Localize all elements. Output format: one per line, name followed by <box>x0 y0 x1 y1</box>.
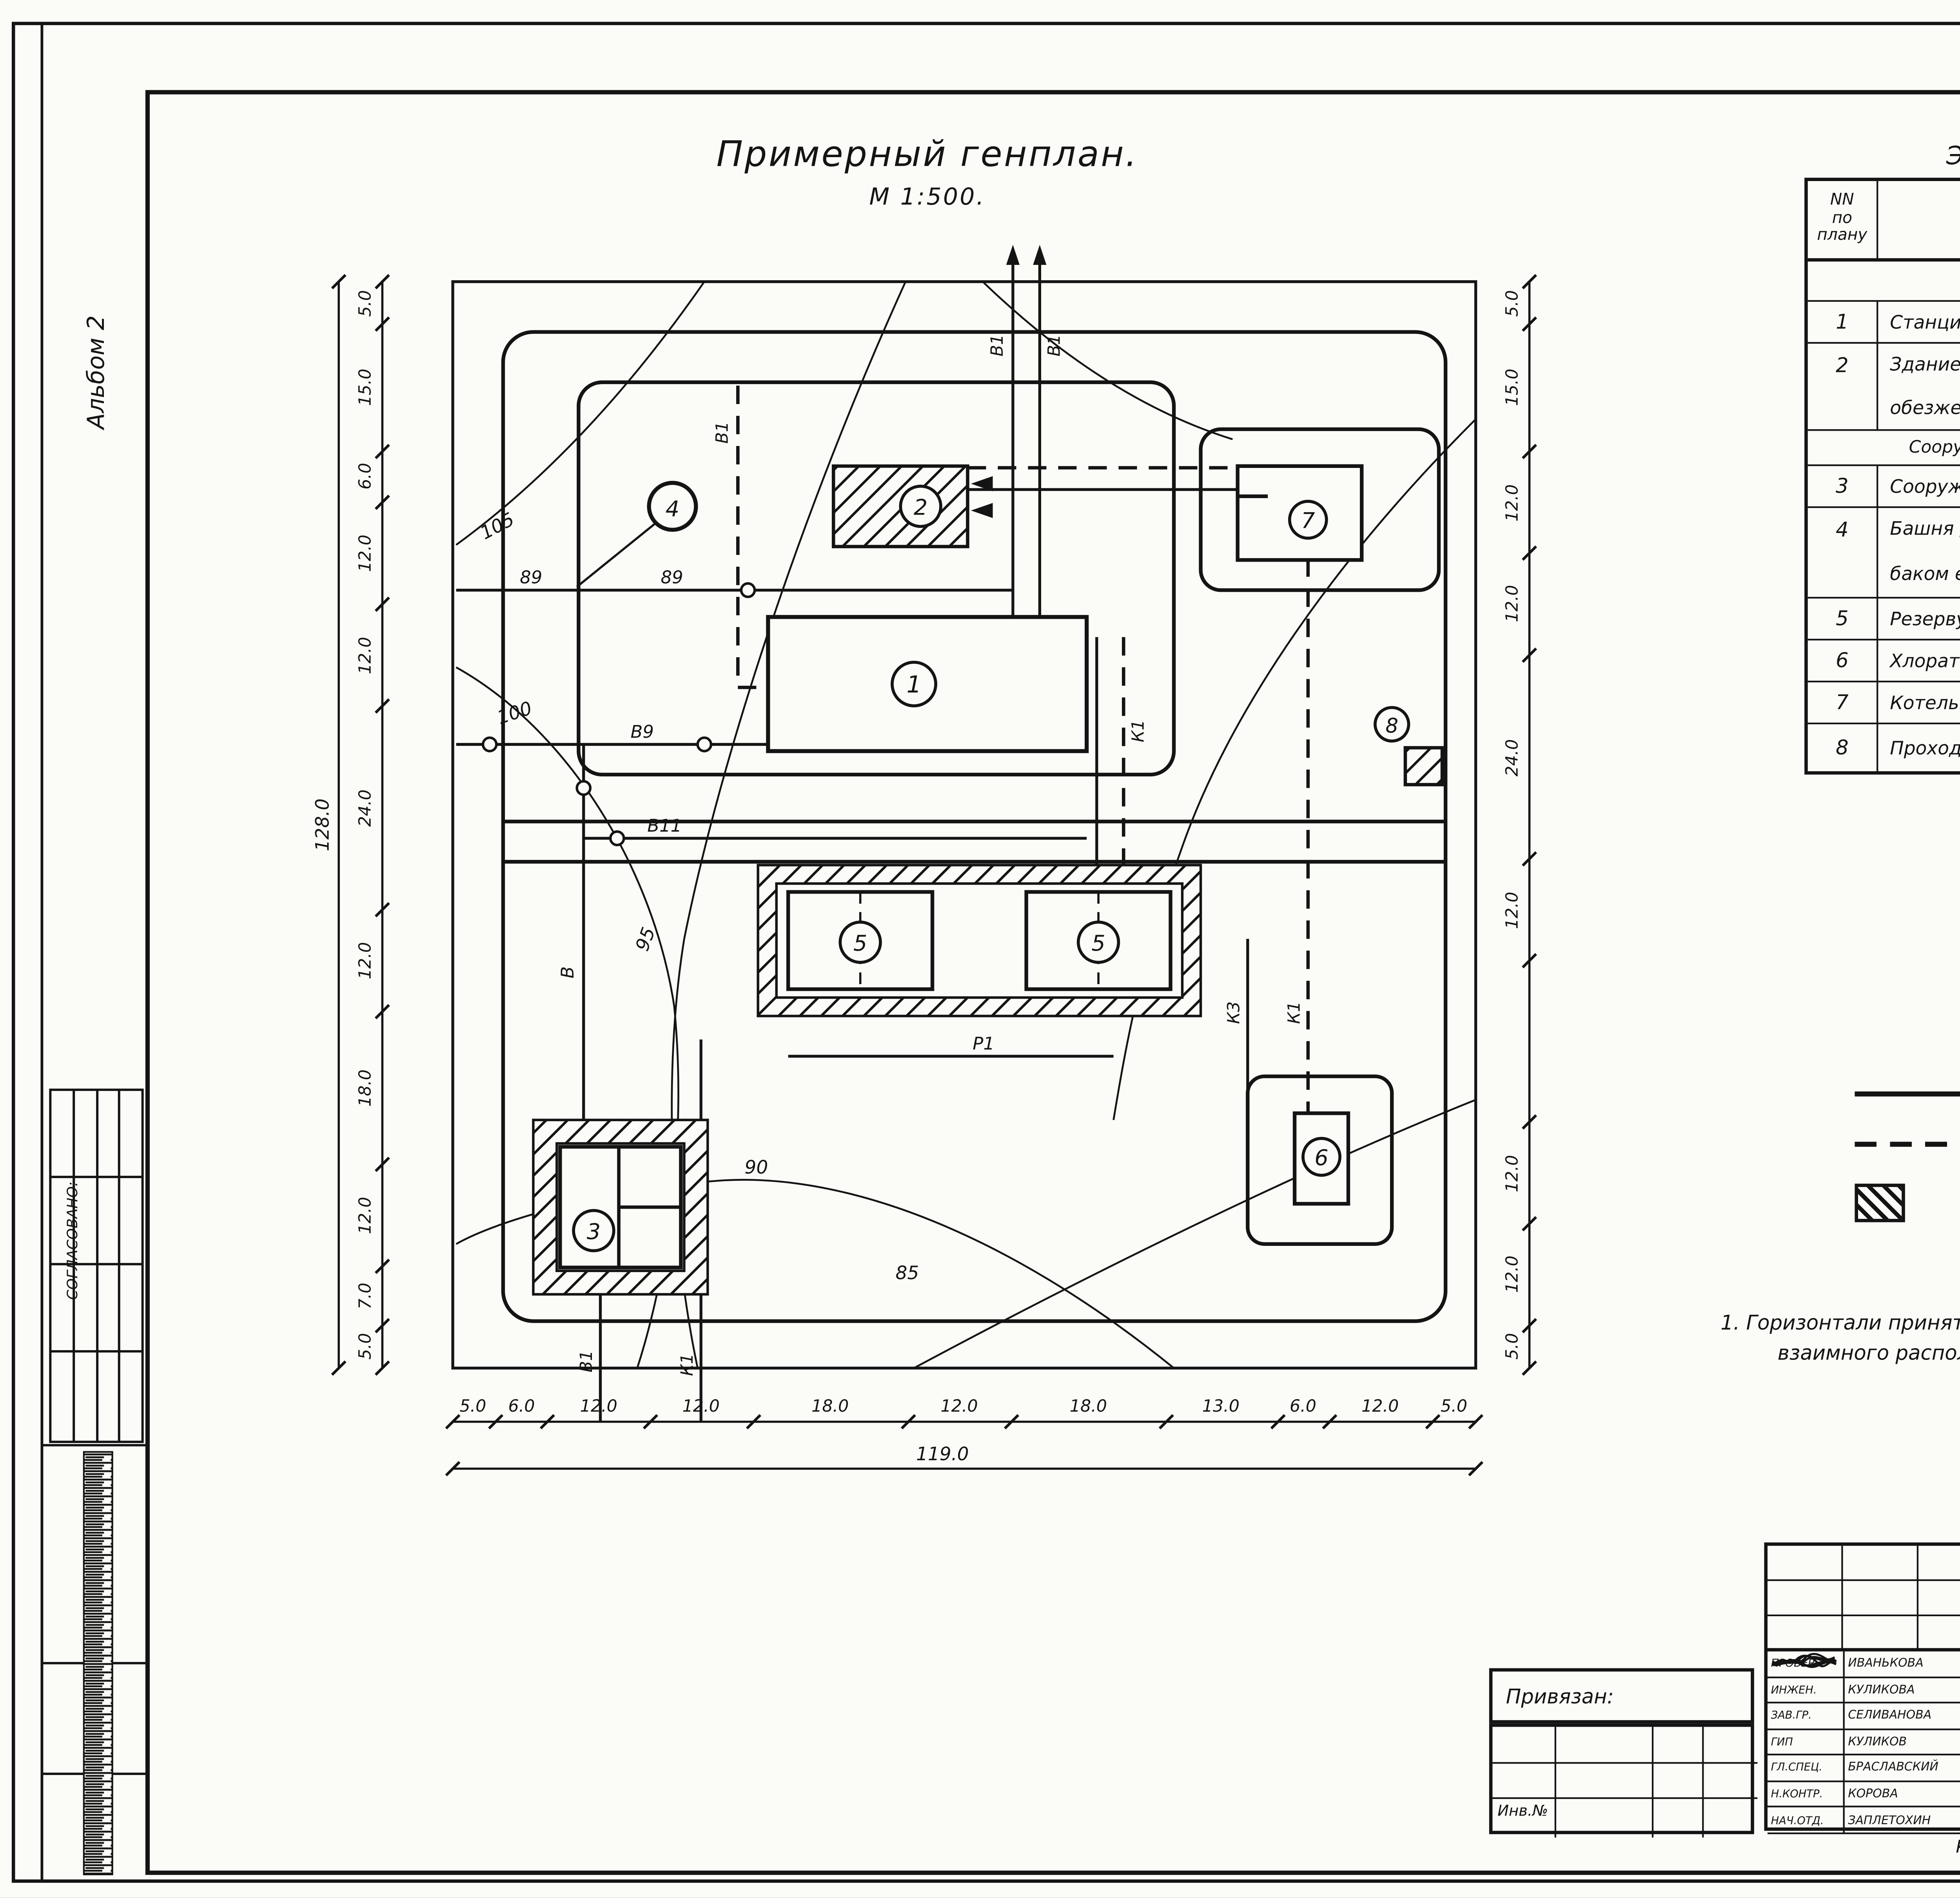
svg-text:24.0: 24.0 <box>355 789 375 827</box>
legend-item-3 <box>1855 1184 1960 1222</box>
contour-85: 85 <box>895 1262 919 1284</box>
svg-text:5: 5 <box>853 931 867 956</box>
svg-text:15.0: 15.0 <box>355 369 375 406</box>
table-cell: 8 <box>1808 724 1878 771</box>
svg-text:7.0: 7.0 <box>355 1283 375 1309</box>
svg-text:12.0: 12.0 <box>580 1396 617 1416</box>
svg-text:6: 6 <box>1314 1145 1328 1171</box>
svg-text:6.0: 6.0 <box>355 463 375 489</box>
hatch-sample <box>1855 1184 1905 1222</box>
section-row: Проектируемые сооружения <box>1808 261 1960 302</box>
svg-text:5.0: 5.0 <box>1503 1333 1522 1360</box>
label-k1-lower: К1 <box>1284 1001 1304 1024</box>
agreed-label: СОГЛАСОВАНО: <box>64 1182 81 1300</box>
label-v1-loop-v: В1 <box>713 421 732 444</box>
table-cell <box>1808 550 1878 598</box>
label-v9: В9 <box>631 721 654 742</box>
table-cell: 5 <box>1808 598 1878 640</box>
svg-text:12.0: 12.0 <box>940 1396 978 1416</box>
label-89-b: 89 <box>661 567 683 588</box>
table-cell: Резервуары чистой воды W=2×700м³ <box>1878 598 1960 640</box>
table-cell: Сооружения по обороту промывной воды <box>1878 466 1960 508</box>
svg-text:5.0: 5.0 <box>355 290 375 317</box>
svg-text:12.0: 12.0 <box>1503 892 1522 929</box>
table-cell: баком емкостью 200м³ <box>1878 550 1960 598</box>
dim-total-left: 128.0 <box>312 798 333 851</box>
inventory-grid: Инв.№ <box>1489 1724 1754 1834</box>
table-cell: обезжелезивания. <box>1878 386 1960 431</box>
label-89-a: 89 <box>520 567 542 588</box>
table-cell: 6 <box>1808 640 1878 682</box>
stamp-main-box: ПРОВЕР.ИВАНЬКОВА ИНЖЕН.КУЛИКОВА ЗАВ.ГР.С… <box>1764 1543 1960 1831</box>
attached-box: Привязан: <box>1489 1668 1754 1724</box>
dim-labels-left: 5.0 15.0 6.0 12.0 12.0 24.0 12.0 18.0 12… <box>312 290 375 1360</box>
svg-text:5.0: 5.0 <box>1503 290 1522 317</box>
svg-text:12.0: 12.0 <box>1503 484 1522 522</box>
svg-text:18.0: 18.0 <box>811 1396 849 1416</box>
svg-text:12.0: 12.0 <box>355 942 375 979</box>
table-cell: 7 <box>1808 682 1878 724</box>
note-line: взаимного расположения сооружений на рел… <box>1720 1338 1960 1368</box>
table-cell: Котельная <box>1878 682 1960 724</box>
copied-by: Копировал: Логинова <box>1871 1838 1960 1858</box>
svg-text:18.0: 18.0 <box>355 1070 375 1107</box>
explication-title: Экспликация зданий и сооружений. <box>1804 141 1960 171</box>
label-b3-k1: К1 <box>677 1354 697 1376</box>
svg-text:5.0: 5.0 <box>459 1396 486 1416</box>
table-cell <box>1808 386 1878 431</box>
label-k1-upper: К1 <box>1129 720 1148 742</box>
table-cell: Станция обезжелезивания <box>1878 302 1960 344</box>
explication: Экспликация зданий и сооружений. NN по п… <box>1804 141 1960 774</box>
svg-text:5.0: 5.0 <box>1441 1396 1467 1416</box>
svg-text:7: 7 <box>1301 508 1315 534</box>
label-r1: Р1 <box>973 1033 995 1054</box>
building-8 <box>1405 748 1442 785</box>
table-cell: Здание бактерицидной установки для станц… <box>1878 344 1960 386</box>
col-header-name: Наименование <box>1878 181 1960 261</box>
title-block: ПРОВЕР.ИВАНЬКОВА ИНЖЕН.КУЛИКОВА ЗАВ.ГР.С… <box>1486 1532 1960 1898</box>
drawing-sheet: 11 Альбом 2 СОГЛАСОВАНО: 105 100 95 90 8… <box>0 0 1960 1898</box>
svg-text:12.0: 12.0 <box>355 535 375 572</box>
label-v: В <box>557 966 578 979</box>
svg-text:18.0: 18.0 <box>1070 1396 1107 1416</box>
svg-text:12.0: 12.0 <box>1503 585 1522 622</box>
svg-text:6.0: 6.0 <box>1290 1396 1316 1416</box>
svg-text:15.0: 15.0 <box>1503 369 1522 406</box>
svg-text:5: 5 <box>1091 931 1105 956</box>
table-cell: 3 <box>1808 466 1878 508</box>
svg-text:2: 2 <box>914 495 927 520</box>
plan-title: Примерный генплан. <box>684 134 1171 174</box>
building-3 <box>533 1120 708 1294</box>
inventory-label: Инв.№ <box>1497 1804 1548 1821</box>
table-cell: Башня для хранения промывной воды <box>1878 508 1960 550</box>
svg-text:13.0: 13.0 <box>1202 1396 1240 1416</box>
legend-title: Условные обозначения <box>1855 1026 1960 1056</box>
svg-text:6.0: 6.0 <box>508 1396 535 1416</box>
label-b3-v1: В1 <box>577 1350 596 1372</box>
col-header-num: NN по плану <box>1808 181 1878 261</box>
label-k3-lower: К3 <box>1224 1001 1243 1024</box>
svg-text:12.0: 12.0 <box>1503 1256 1522 1293</box>
svg-text:3: 3 <box>587 1219 601 1244</box>
explication-table: NN по плану Наименование Номер типового … <box>1804 178 1960 774</box>
table-cell: 2 <box>1808 344 1878 386</box>
signature-rows: ПРОВЕР.ИВАНЬКОВА ИНЖЕН.КУЛИКОВА ЗАВ.ГР.С… <box>1768 1651 1960 1834</box>
svg-text:1: 1 <box>906 671 921 698</box>
svg-text:12.0: 12.0 <box>355 637 375 674</box>
svg-text:12.0: 12.0 <box>1361 1396 1399 1416</box>
note-line: 1. Горизонтали приняты условно для обозн… <box>1720 1308 1960 1338</box>
svg-text:12.0: 12.0 <box>682 1396 720 1416</box>
section-row: Сооружения, рекомендуемые для применения… <box>1808 431 1960 466</box>
dim-total-bottom: 119.0 <box>916 1443 969 1465</box>
table-cell: 4 <box>1808 508 1878 550</box>
svg-text:12.0: 12.0 <box>355 1197 375 1234</box>
revision-grid <box>1768 1546 1960 1650</box>
legend: Условные обозначения Обеззараживание хло… <box>1855 1026 1960 1251</box>
dashed-line-sample <box>1855 1142 1960 1147</box>
dim-labels-right: 5.0 15.0 12.0 12.0 24.0 12.0 12.0 12.0 5… <box>1503 290 1522 1360</box>
svg-text:5.0: 5.0 <box>355 1333 375 1360</box>
legend-item-1: Обеззараживание хлорной водой (Вариант I… <box>1855 1083 1960 1105</box>
table-cell: Хлораторная на 2кг хлора в час. <box>1878 640 1960 682</box>
svg-text:24.0: 24.0 <box>1503 739 1522 776</box>
contour-90: 90 <box>744 1157 768 1178</box>
label-v11: В11 <box>647 815 682 836</box>
svg-text:12.0: 12.0 <box>1503 1155 1522 1192</box>
dim-labels-bottom: 5.0 6.0 12.0 12.0 18.0 12.0 18.0 13.0 6.… <box>459 1396 1467 1465</box>
label-v1-riser2: В1 <box>1045 334 1064 357</box>
stamp-text-band <box>84 1452 113 1874</box>
reservoirs <box>758 865 1201 1016</box>
legend-item-2: Обеззараживание бактерицидным облучением… <box>1855 1133 1960 1155</box>
note: Примечание. 1. Горизонтали приняты услов… <box>1720 1267 1960 1368</box>
table-cell: Проходная <box>1878 724 1960 771</box>
label-v1-riser1: В1 <box>987 334 1007 357</box>
svg-text:4: 4 <box>666 497 679 522</box>
plan-scale: М 1:500. <box>684 185 1171 211</box>
table-cell: 1 <box>1808 302 1878 344</box>
solid-line-sample <box>1855 1091 1960 1097</box>
album-label: Альбом 2 <box>82 315 110 431</box>
svg-text:8: 8 <box>1385 714 1398 738</box>
note-title: Примечание. <box>1720 1267 1960 1294</box>
plan-title-block: Примерный генплан. М 1:500. <box>684 134 1171 211</box>
